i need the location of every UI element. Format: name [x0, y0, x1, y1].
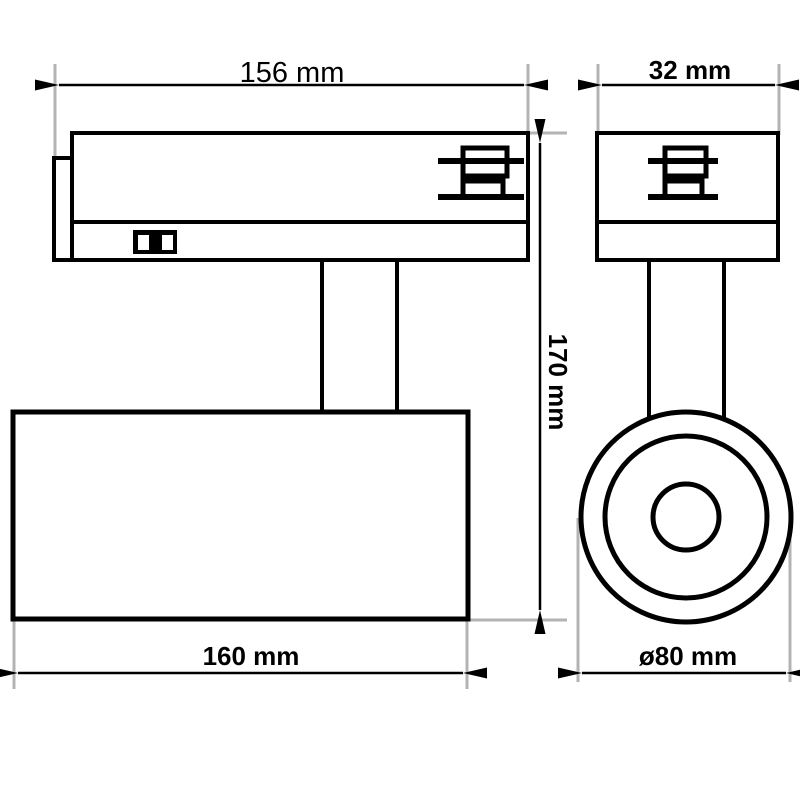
lamp-head-outer-ring: [581, 412, 791, 622]
dimension-156: 156 mm: [59, 57, 524, 89]
technical-drawing-canvas: 156 mm 32 mm 170 mm 160 mm ø80 mm: [0, 0, 800, 800]
dim-label-160: 160 mm: [203, 641, 300, 671]
track-spotlight-drawing: 156 mm 32 mm 170 mm 160 mm ø80 mm: [0, 0, 800, 800]
dim-label-80: ø80 mm: [639, 641, 737, 671]
dimension-160: 160 mm: [18, 641, 463, 673]
dimension-32: 32 mm: [602, 55, 775, 85]
track-contact-icon-front: [648, 148, 718, 197]
dimension-170: 170 mm: [540, 143, 573, 610]
adapter-mount-tab: [54, 158, 72, 260]
dim-label-32: 32 mm: [649, 55, 731, 85]
dim-label-170: 170 mm: [543, 334, 573, 431]
lamp-body-outline: [13, 412, 468, 619]
side-view: [13, 133, 528, 619]
power-switch-icon: [133, 230, 177, 254]
dim-label-156: 156 mm: [240, 57, 345, 89]
dimension-80: ø80 mm: [582, 641, 786, 673]
track-contact-icon: [438, 148, 524, 197]
front-view: [581, 133, 791, 622]
